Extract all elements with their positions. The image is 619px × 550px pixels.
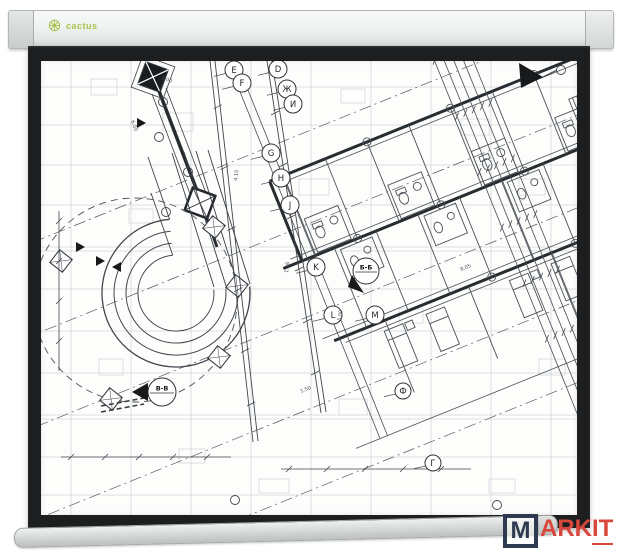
screen-housing: cactus (8, 10, 614, 49)
blueprint-curve-connector (102, 157, 250, 367)
blueprint-drawing: Б-БВ-В EFDЖИGHJKLMФГ 4.151.362.005.008.0… (41, 61, 577, 515)
stair-hatch (569, 84, 577, 124)
svg-text:5.00: 5.00 (337, 309, 344, 321)
watermark-ark: ARK (540, 515, 592, 545)
housing-left-cap (9, 11, 34, 48)
svg-text:И: И (290, 100, 296, 110)
svg-text:G: G (268, 149, 275, 159)
svg-text:J: J (288, 201, 292, 211)
svg-text:8.05: 8.05 (460, 263, 473, 273)
screen-surface: Б-БВ-В EFDЖИGHJKLMФГ 4.151.362.005.008.0… (41, 61, 577, 515)
svg-text:Г: Г (430, 459, 435, 469)
dimension-labels: 4.151.362.005.008.051.506.00 (129, 75, 472, 395)
product-photo: cactus (0, 0, 619, 550)
svg-text:E: E (231, 66, 236, 76)
watermark-logo: M ARK IT (503, 514, 613, 548)
brand-logo: cactus (47, 18, 98, 33)
svg-text:Б-Б: Б-Б (360, 264, 373, 272)
svg-text:L: L (331, 311, 336, 321)
watermark-m-letter: M (511, 519, 531, 543)
svg-text:F: F (240, 79, 245, 89)
screen-frame: Б-БВ-В EFDЖИGHJKLMФГ 4.151.362.005.008.0… (28, 46, 590, 528)
svg-text:Ж: Ж (282, 85, 291, 95)
watermark-it: IT (592, 515, 613, 545)
svg-text:1.36: 1.36 (284, 261, 291, 273)
brand-logo-text: cactus (66, 21, 98, 31)
watermark-m-box: M (503, 514, 538, 548)
axis-letter-circles: EFDЖИGHJKLMФГ (214, 61, 441, 471)
svg-text:M: M (371, 311, 378, 321)
blueprint-faint-layer (41, 61, 577, 515)
blueprint-room-block (41, 61, 577, 515)
blueprint-dimension-lines (56, 61, 471, 472)
svg-text:4.15: 4.15 (233, 169, 240, 181)
svg-text:K: K (313, 263, 319, 273)
housing-right-cap (585, 11, 613, 48)
svg-text:В-В: В-В (156, 385, 169, 393)
blueprint-pile-circle (41, 198, 248, 412)
svg-text:D: D (275, 65, 282, 75)
svg-text:1.50: 1.50 (300, 385, 313, 395)
cactus-flower-icon (47, 18, 62, 33)
svg-text:Ф: Ф (399, 387, 406, 397)
svg-text:H: H (278, 174, 284, 184)
